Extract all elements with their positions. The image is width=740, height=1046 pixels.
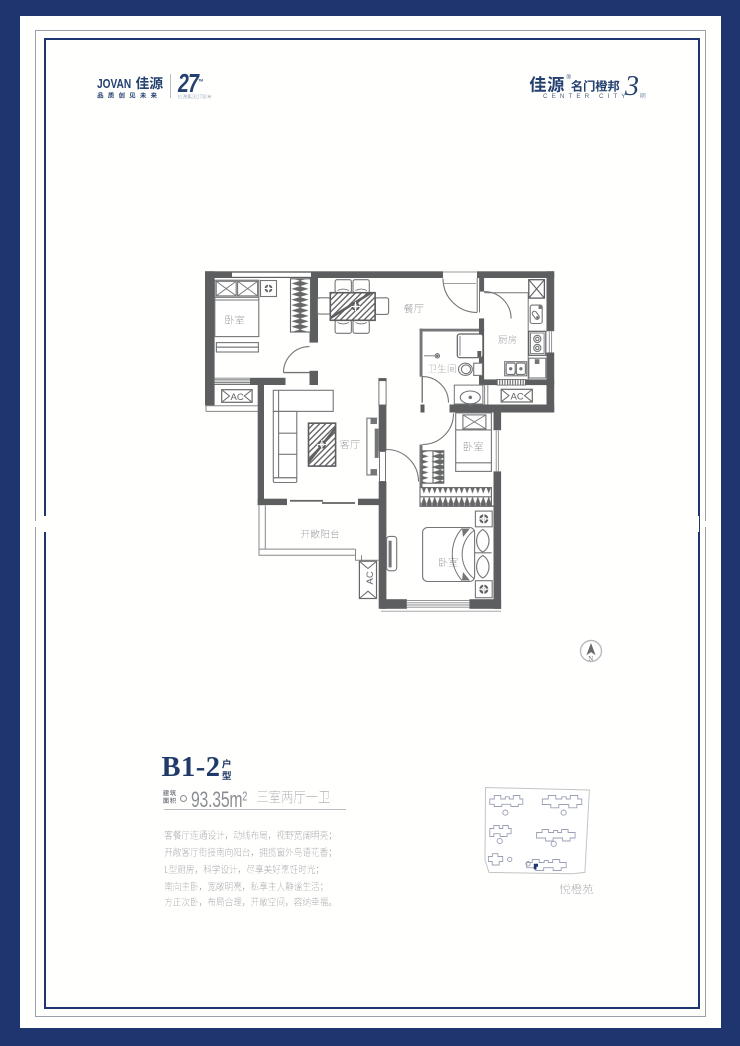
svg-text:AC: AC — [365, 571, 376, 584]
svg-text:AC: AC — [511, 392, 524, 403]
svg-text:AC: AC — [231, 392, 244, 403]
svg-text:N: N — [588, 655, 593, 663]
